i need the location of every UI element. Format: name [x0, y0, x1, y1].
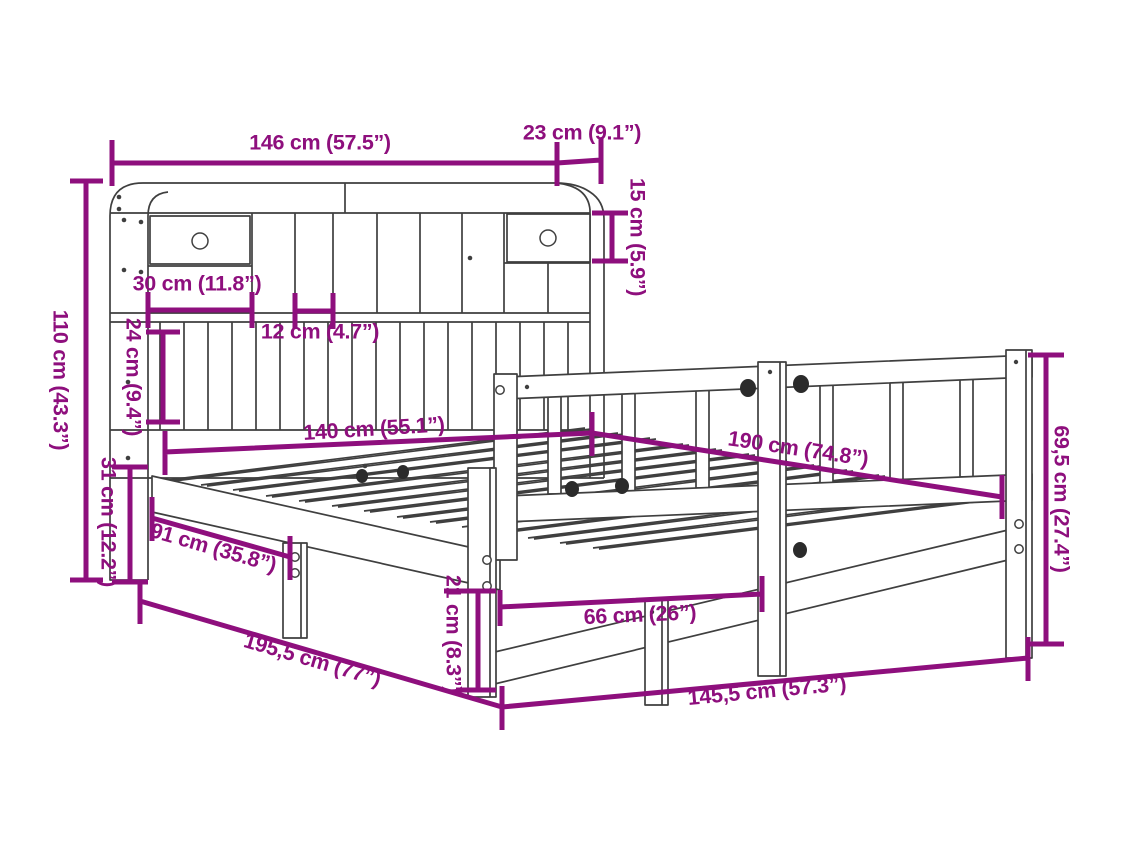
dim-cubby-width: 12 cm (4.7”) — [261, 293, 379, 344]
dim-frame-side-height: 31 cm (12.2”) — [96, 457, 148, 587]
railing-spindle — [548, 396, 561, 494]
railing-middle-post — [758, 362, 786, 676]
right-drawer-knob — [540, 230, 556, 246]
left-drawer-knob — [192, 233, 208, 249]
railing-spindle — [890, 382, 903, 480]
dim-shelf-depth-label: 23 cm (9.1”) — [523, 121, 641, 145]
dim-headboard-width-label: 146 cm (57.5”) — [249, 131, 391, 155]
dim-drawer-width-label: 30 cm (11.8”) — [133, 272, 262, 296]
dim-drawer-width: 30 cm (11.8”) — [133, 272, 262, 328]
foot-corner-post — [468, 468, 496, 697]
dim-railing-height: 69,5 cm (27.4”) — [1028, 355, 1073, 644]
dim-shelf-depth-lines — [557, 138, 601, 184]
foot-rail — [482, 530, 1008, 687]
dim-top-cubby-height-label: 15 cm (5.9”) — [625, 178, 649, 296]
dim-total-length-label: 195,5 cm (77”) — [241, 628, 384, 691]
dim-shelf-depth: 23 cm (9.1”) — [523, 121, 641, 184]
dim-railing-height-label: 69,5 cm (27.4”) — [1049, 425, 1073, 572]
railing-spindle — [622, 393, 635, 491]
dim-panel-height-lines — [146, 332, 180, 422]
dim-headboard-height-label: 110 cm (43.3”) — [48, 310, 72, 451]
dim-cubby-width-label: 12 cm (4.7”) — [261, 320, 379, 344]
diagram-canvas: 146 cm (57.5”) 23 cm (9.1”) 15 cm (5.9”)… — [0, 0, 1134, 850]
dim-headboard-width: 146 cm (57.5”) — [112, 131, 557, 186]
dim-top-cubby-height-lines — [592, 213, 628, 261]
dim-panel-height: 24 cm (9.4”) — [121, 318, 180, 436]
dim-leg-spacing-label: 66 cm (26”) — [583, 600, 697, 629]
bed-dimension-diagram: 146 cm (57.5”) 23 cm (9.1”) 15 cm (5.9”)… — [0, 0, 1134, 850]
railing-corner-post — [1006, 350, 1032, 658]
railing-spindle — [696, 390, 709, 488]
dim-frame-length-label: 145,5 cm (57.3”) — [687, 671, 848, 710]
dim-panel-height-label: 24 cm (9.4”) — [121, 318, 145, 436]
dim-headboard-height: 110 cm (43.3”) — [48, 181, 103, 580]
railing-left-post — [494, 374, 517, 560]
dim-top-cubby-height: 15 cm (5.9”) — [592, 178, 649, 296]
dim-frame-side-height-label: 31 cm (12.2”) — [96, 457, 120, 587]
side-railing — [494, 350, 1032, 676]
railing-spindle — [960, 379, 973, 477]
dim-leg-height-label: 21 cm (8.3”) — [441, 575, 465, 693]
